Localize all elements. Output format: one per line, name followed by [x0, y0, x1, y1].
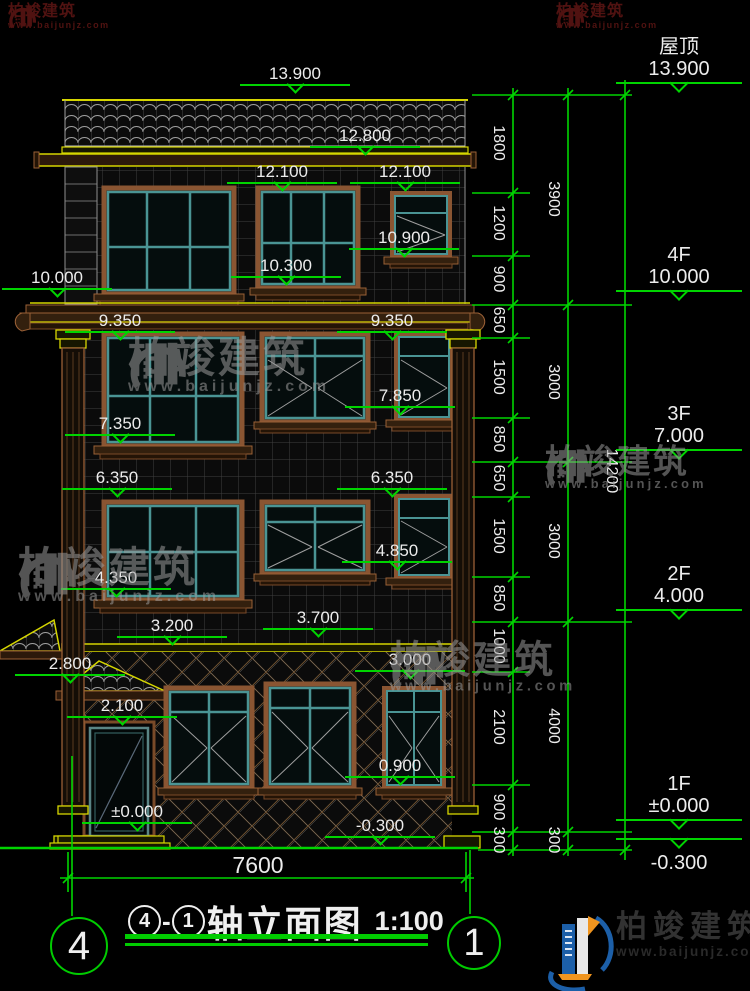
dim-value: 4000 [544, 684, 562, 768]
brand-glyph-icon [545, 444, 595, 494]
level-marker: 7.350 [65, 414, 175, 441]
floor-label-4f: 4F10.000 [616, 244, 742, 298]
level-marker: 2.800 [15, 654, 125, 681]
brand-glyph-icon [390, 640, 447, 697]
dim-value: 300 [489, 798, 507, 882]
watermark-center-left: 柏竣建筑www.baijunjz.com [128, 336, 330, 396]
dim-value: 1800 [489, 101, 507, 185]
floor-label-basement: -0.300 [616, 836, 742, 874]
dim-value-width: 7600 [188, 852, 328, 879]
watermark-right: 柏竣建筑www.baijunjz.com [545, 444, 707, 492]
watermark-lower-left: 柏竣建筑www.baijunjz.com [18, 546, 220, 606]
cad-elevation-screenshot: 13.900 12.800 12.100 12.100 10.900 10.30… [0, 0, 750, 991]
level-marker: 4.850 [342, 541, 452, 568]
level-marker: 12.100 [350, 162, 460, 189]
level-marker: 12.800 [310, 126, 420, 153]
level-marker: 10.300 [231, 256, 341, 283]
level-marker: 6.350 [337, 468, 447, 495]
dim-value: 300 [544, 798, 562, 882]
brand-glyph-icon [556, 3, 586, 33]
level-marker: 3.700 [263, 608, 373, 635]
axis-bubble-1: 1 [447, 916, 501, 970]
brand-glyph-icon [128, 336, 190, 398]
level-marker: 6.350 [62, 468, 172, 495]
level-marker: 2.100 [67, 696, 177, 723]
floor-label-roof: 屋顶13.900 [616, 36, 742, 90]
level-marker: 12.100 [227, 162, 337, 189]
level-marker: 0.900 [345, 756, 455, 783]
level-marker: 13.900 [240, 64, 350, 91]
level-marker: 3.200 [117, 616, 227, 643]
dim-value: 2100 [489, 685, 507, 769]
drawing-title: 4 - 1 轴立面图 1:100 [128, 894, 444, 948]
watermark-top-left: 柏竣建筑www.baijunjz.com [8, 3, 110, 30]
brand-glyph-icon [8, 3, 38, 33]
level-marker: 10.900 [349, 228, 459, 255]
title-separator: - [162, 906, 171, 937]
watermark-lower-center: 柏竣建筑www.baijunjz.com [390, 640, 576, 695]
dim-value: 3000 [544, 499, 562, 583]
title-underline [125, 943, 428, 946]
level-marker: -0.300 [325, 816, 435, 843]
company-logo: 柏竣建筑www.baijunjz.com [616, 910, 750, 959]
level-marker: 7.850 [345, 386, 455, 413]
dim-value: 3000 [544, 340, 562, 424]
dim-value: 3900 [544, 157, 562, 241]
level-marker: ±0.000 [82, 802, 192, 829]
title-underline [125, 934, 428, 939]
brand-glyph-icon [18, 546, 80, 608]
level-marker: 9.350 [337, 311, 447, 338]
title-text: 轴立面图 [207, 894, 363, 948]
level-marker: 10.000 [2, 268, 112, 295]
title-scale: 1:100 [375, 906, 444, 937]
floor-label-2f: 2F4.000 [616, 563, 742, 617]
logo-mark [551, 916, 612, 990]
axis-bubble-4: 4 [50, 917, 108, 975]
axis-bubble-small: 1 [172, 905, 205, 938]
watermark-top-right: 柏竣建筑www.baijunjz.com [556, 3, 658, 30]
floor-label-1f: 1F±0.000 [616, 773, 742, 827]
axis-bubble-small: 4 [128, 905, 161, 938]
